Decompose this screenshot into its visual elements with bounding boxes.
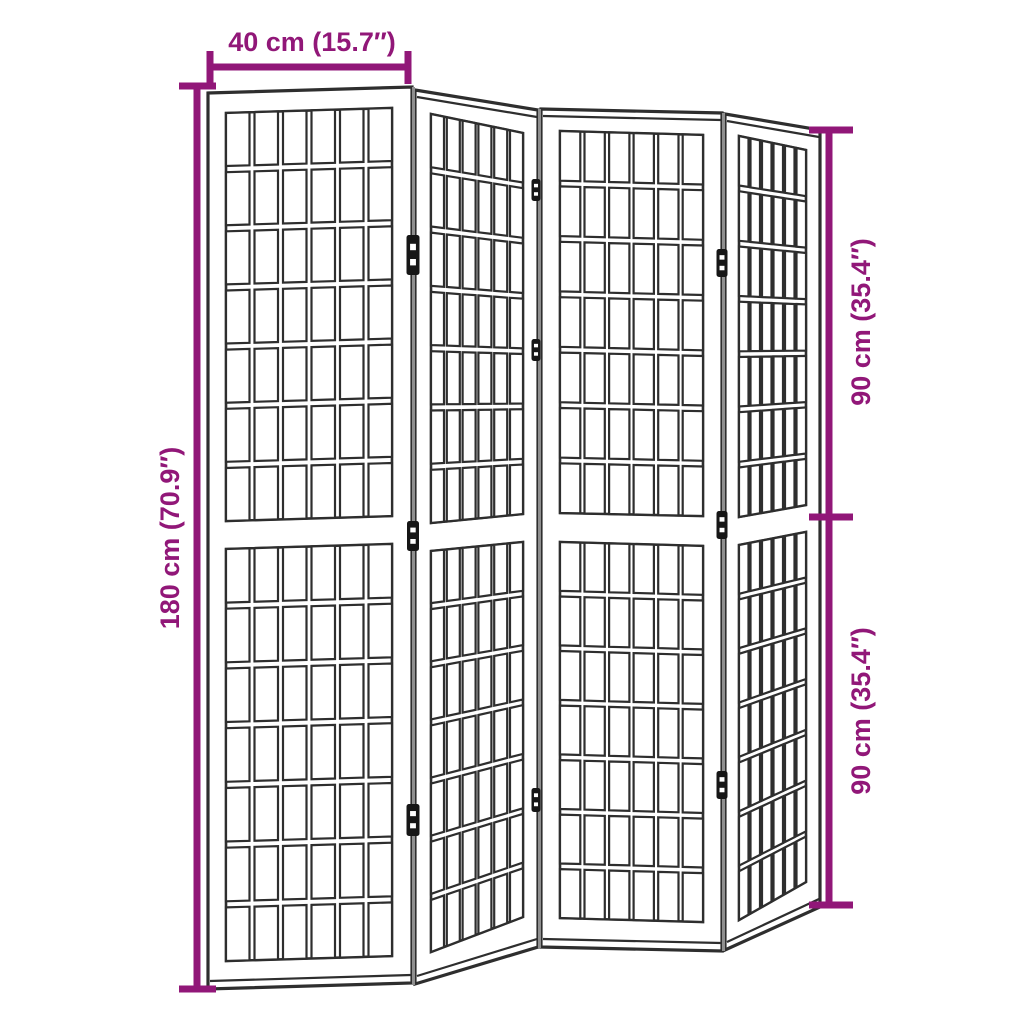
lattice-cell — [463, 547, 476, 599]
lattice-cell — [431, 780, 444, 836]
lattice-cell — [658, 708, 678, 758]
lattice-cell — [463, 352, 476, 404]
lattice-cell — [494, 184, 507, 236]
hinge-hole — [410, 539, 415, 544]
lattice-cell — [797, 148, 807, 196]
lattice-cell — [463, 772, 476, 826]
lattice-cell — [312, 228, 336, 282]
lattice-cell — [762, 303, 772, 351]
lattice-cell — [312, 904, 336, 958]
lattice-cell — [340, 605, 364, 659]
lattice-cell — [255, 846, 279, 900]
hinge-body — [532, 339, 541, 361]
lattice-cell — [226, 847, 250, 901]
lattice-cell — [510, 542, 523, 593]
lattice-cell — [774, 692, 784, 743]
lattice-cell — [585, 761, 605, 810]
lattice-cell — [312, 785, 336, 839]
lattice-cell — [683, 709, 703, 758]
screen-panels — [208, 87, 820, 989]
panel-2 — [415, 90, 538, 984]
lattice-cell — [283, 111, 307, 165]
lattice-cell — [739, 813, 749, 866]
lattice-cell — [463, 410, 476, 462]
lattice-cell — [312, 844, 336, 898]
lattice-cell — [739, 597, 749, 648]
lattice-cell — [226, 907, 250, 961]
lattice-cell — [774, 250, 784, 298]
lattice-cell — [658, 545, 678, 595]
lattice-cell — [226, 787, 250, 841]
lattice-cell — [510, 186, 523, 238]
lattice-cell — [447, 719, 460, 773]
lattice-cell — [431, 173, 444, 228]
lattice-cell — [478, 410, 491, 462]
lattice-cell — [255, 171, 279, 225]
lattice-cell — [658, 654, 678, 703]
lattice-cell — [634, 410, 654, 460]
lattice-cell — [510, 651, 523, 703]
lattice-cell — [762, 195, 772, 244]
lattice-cell — [510, 465, 523, 516]
lattice-cell — [510, 814, 523, 867]
lattice-cell — [340, 664, 364, 718]
lattice-cell — [785, 356, 795, 403]
lattice-cell — [785, 198, 795, 246]
panel-3 — [541, 109, 722, 951]
lattice-cell — [255, 407, 279, 461]
lattice-cell — [283, 905, 307, 959]
lattice-cell — [658, 599, 678, 648]
panel-4 — [725, 114, 820, 950]
lattice-cell — [369, 404, 393, 458]
lattice-cell — [369, 463, 393, 517]
lattice-cell — [283, 666, 307, 720]
hinge-body — [407, 235, 420, 275]
lattice-cell — [283, 229, 307, 283]
dimension-left-label: 180 cm (70.9″) — [155, 447, 185, 630]
lattice-cell — [634, 244, 654, 294]
lattice-cell — [774, 796, 784, 848]
lattice-cell — [560, 706, 580, 755]
lattice-cell — [340, 346, 364, 400]
lattice-cell — [369, 226, 393, 280]
lattice-cell — [312, 406, 336, 460]
lattice-cell — [447, 605, 460, 658]
dimension-top-label: 40 cm (15.7″) — [228, 27, 396, 57]
lattice-cell — [369, 783, 393, 837]
lattice-cell — [785, 688, 795, 738]
lattice-cell — [312, 606, 336, 660]
lattice-cell — [283, 547, 307, 601]
hinge-hole — [410, 259, 416, 265]
lattice-cell — [797, 735, 807, 785]
lattice-cell — [340, 109, 364, 163]
lattice-cell — [585, 298, 605, 348]
lattice-cell — [255, 547, 279, 601]
lattice-cell — [751, 357, 761, 406]
lattice-cell — [494, 409, 507, 460]
lattice-cell — [797, 252, 807, 299]
lattice-cell — [751, 860, 761, 913]
lattice-cell — [762, 357, 772, 406]
lattice-cell — [609, 409, 629, 459]
lattice-cell — [431, 607, 444, 661]
lattice-cell — [560, 408, 580, 458]
lattice-cell — [340, 227, 364, 281]
lattice-cell — [447, 548, 460, 601]
lattice-cell — [369, 345, 393, 399]
lattice-cell — [797, 583, 807, 631]
lattice-cell — [683, 245, 703, 295]
lattice-cell — [739, 136, 749, 187]
lattice-cell — [447, 890, 460, 946]
lattice-cell — [683, 764, 703, 814]
lattice-cell — [797, 200, 807, 248]
lattice-cell — [683, 655, 703, 704]
lattice-cell — [447, 410, 460, 463]
lattice-cell — [609, 243, 629, 293]
lattice-cell — [762, 539, 772, 589]
lattice-cell — [494, 127, 507, 180]
lattice-cell — [369, 843, 393, 897]
lattice-cell — [785, 460, 795, 509]
lattice-cell — [226, 608, 250, 662]
hinge-icon — [532, 339, 541, 361]
hinge-hole — [720, 517, 725, 521]
lattice-cell — [255, 607, 279, 661]
lattice-cell — [431, 410, 444, 463]
lattice-cell — [226, 408, 250, 462]
lattice-cell — [762, 141, 772, 191]
lattice-cell — [797, 532, 807, 580]
lattice-cell — [463, 236, 476, 289]
lattice-cell — [340, 784, 364, 838]
lattice-cell — [255, 230, 279, 284]
lattice-cell — [478, 545, 491, 597]
lattice-cell — [510, 130, 523, 182]
lattice-cell — [478, 181, 491, 234]
lattice-cell — [560, 869, 580, 919]
lattice-cell — [255, 667, 279, 721]
lattice-cell — [634, 354, 654, 404]
lattice-cell — [463, 828, 476, 883]
lattice-cell — [762, 854, 772, 907]
lattice-cell — [510, 705, 523, 757]
lattice-cell — [683, 411, 703, 461]
lattice-cell — [683, 818, 703, 868]
hinge-hole — [534, 192, 538, 196]
lattice-cell — [312, 110, 336, 164]
panel-1 — [208, 87, 412, 989]
lattice-cell — [255, 348, 279, 402]
lattice-cell — [658, 872, 678, 921]
lattice-cell — [774, 641, 784, 691]
lattice-cell — [739, 247, 749, 297]
lattice-cell — [478, 601, 491, 653]
lattice-cell — [751, 248, 761, 297]
lattice-cell — [447, 235, 460, 289]
diagram-canvas: 40 cm (15.7″) 180 cm (70.9″) 90 cm (35.4… — [0, 0, 1024, 1024]
lattice-cell — [797, 837, 807, 888]
lattice-cell — [494, 709, 507, 762]
hinge-hole — [410, 811, 416, 816]
lattice-cell — [340, 724, 364, 778]
hinge-body — [532, 788, 541, 812]
lattice-cell — [762, 697, 772, 748]
lattice-cell — [739, 705, 749, 757]
lattice-cell — [255, 289, 279, 343]
lattice-cell — [785, 637, 795, 686]
hinge-body — [532, 179, 541, 201]
hinge-icon — [717, 249, 728, 277]
lattice-cell — [774, 356, 784, 404]
lattice-cell — [463, 294, 476, 346]
lattice-cell — [431, 665, 444, 720]
lattice-cell — [226, 548, 250, 602]
lattice-cell — [609, 598, 629, 647]
lattice-cell — [785, 740, 795, 790]
lattice-cell — [478, 466, 491, 518]
lattice-cell — [739, 302, 749, 352]
lattice-cell — [739, 357, 749, 407]
hinge-hole — [410, 528, 415, 533]
lattice-cell — [478, 823, 491, 877]
lattice-cell — [609, 816, 629, 865]
lattice-cell — [283, 726, 307, 780]
lattice-cell — [447, 662, 460, 716]
lattice-cell — [762, 410, 772, 459]
lattice-cell — [634, 817, 654, 866]
hinge-body — [407, 521, 419, 551]
lattice-cell — [255, 786, 279, 840]
lattice-cell — [683, 466, 703, 516]
lattice-cell — [797, 304, 807, 351]
lattice-cell — [478, 295, 491, 347]
lattice-cell — [739, 651, 749, 703]
lattice-cell — [785, 408, 795, 456]
lattice-cell — [478, 712, 491, 765]
hinge-icon — [717, 511, 728, 539]
lattice-cell — [634, 465, 654, 515]
lattice-cell — [431, 469, 444, 523]
lattice-cell — [585, 464, 605, 514]
lattice-cell — [785, 843, 795, 894]
lattice-cell — [683, 545, 703, 595]
lattice-cell — [658, 355, 678, 405]
lattice-cell — [510, 242, 523, 293]
lattice-cell — [369, 723, 393, 777]
lattice-cell — [510, 298, 523, 349]
lattice-cell — [510, 760, 523, 813]
lattice-cell — [683, 873, 703, 922]
lattice-cell — [447, 468, 460, 521]
lattice-cell — [560, 186, 580, 236]
lattice-cell — [312, 725, 336, 779]
lattice-cell — [226, 112, 250, 166]
lattice-cell — [312, 287, 336, 341]
lattice-cell — [585, 870, 605, 920]
lattice-cell — [774, 848, 784, 900]
lattice-cell — [785, 304, 795, 351]
lattice-cell — [797, 356, 807, 403]
lattice-cell — [478, 353, 491, 404]
lattice-cell — [658, 189, 678, 239]
lattice-cell — [494, 240, 507, 292]
lattice-cell — [683, 356, 703, 406]
hinge-icon — [532, 179, 541, 201]
lattice-cell — [634, 188, 654, 238]
lattice-cell — [609, 464, 629, 514]
lattice-cell — [447, 352, 460, 405]
hinge-hole — [534, 344, 538, 348]
lattice-cell — [683, 190, 703, 240]
lattice-cell — [494, 465, 507, 516]
lattice-cell — [751, 138, 761, 189]
lattice-cell — [609, 871, 629, 920]
lattice-cell — [312, 665, 336, 719]
lattice-cell — [774, 462, 784, 511]
hinge-hole — [534, 802, 538, 806]
lattice-cell — [634, 871, 654, 920]
lattice-cell — [447, 176, 460, 230]
lattice-cell — [369, 167, 393, 221]
lattice-cell — [774, 303, 784, 351]
lattice-cell — [494, 599, 507, 651]
lattice-cell — [585, 597, 605, 647]
hinge-icon — [407, 235, 420, 275]
lattice-cell — [283, 606, 307, 660]
lattice-cell — [478, 124, 491, 178]
lattice-cell — [431, 351, 444, 404]
lattice-cell — [585, 815, 605, 864]
lattice-cell — [369, 286, 393, 340]
lattice-cell — [585, 543, 605, 592]
lattice-cell — [658, 763, 678, 813]
lattice-cell — [431, 550, 444, 603]
lattice-cell — [585, 353, 605, 403]
lattice-cell — [560, 760, 580, 809]
lattice-cell — [634, 133, 654, 183]
lattice-cell — [226, 349, 250, 403]
dimension-right-lower-label: 90 cm (35.4″) — [846, 627, 876, 795]
lattice-cell — [585, 187, 605, 237]
hinge-body — [717, 771, 728, 799]
hinge-hole — [720, 266, 725, 270]
lattice-cell — [494, 654, 507, 706]
lattice-cell — [751, 807, 761, 860]
hinge-hole — [410, 823, 416, 828]
lattice-cell — [340, 405, 364, 459]
lattice-cell — [658, 134, 678, 184]
lattice-cell — [494, 764, 507, 817]
lattice-cell — [751, 193, 761, 243]
lattice-cell — [494, 544, 507, 595]
hinge-hole — [720, 528, 725, 532]
lattice-cell — [658, 466, 678, 516]
hinge-hole — [720, 777, 725, 781]
lattice-cell — [739, 759, 749, 812]
lattice-cell — [739, 191, 749, 242]
lattice-cell — [340, 545, 364, 599]
lattice-cell — [762, 249, 772, 298]
lattice-cell — [447, 776, 460, 831]
lattice-cell — [340, 903, 364, 957]
lattice-cell — [751, 594, 761, 645]
dimension-top: 40 cm (15.7″) — [210, 27, 408, 84]
lattice-cell — [797, 684, 807, 733]
lattice-cell — [463, 603, 476, 656]
lattice-cell — [560, 815, 580, 864]
lattice-cell — [478, 768, 491, 822]
lattice-cell — [560, 353, 580, 403]
lattice-cell — [609, 354, 629, 404]
lattice-cell — [478, 238, 491, 290]
lattice-cell — [340, 464, 364, 518]
lattice-cell — [431, 233, 444, 287]
hinge-hole — [410, 244, 416, 250]
lattice-cell — [340, 168, 364, 222]
lattice-cell — [340, 844, 364, 898]
lattice-cell — [774, 143, 784, 192]
lattice-cell — [658, 410, 678, 460]
lattice-cell — [797, 459, 807, 507]
lattice-cell — [283, 406, 307, 460]
lattice-cell — [560, 542, 580, 591]
lattice-cell — [609, 762, 629, 811]
lattice-cell — [585, 132, 605, 182]
lattice-cell — [255, 727, 279, 781]
lattice-cell — [751, 754, 761, 806]
hinge-body — [717, 249, 728, 277]
lattice-cell — [369, 108, 393, 162]
lattice-cell — [683, 600, 703, 649]
lattice-cell — [560, 242, 580, 292]
lattice-cell — [510, 596, 523, 647]
lattice-cell — [463, 659, 476, 712]
lattice-cell — [634, 653, 654, 702]
lattice-cell — [609, 543, 629, 592]
lattice-cell — [447, 117, 460, 172]
lattice-cell — [785, 251, 795, 299]
lattice-cell — [560, 131, 580, 181]
lattice-cell — [785, 586, 795, 635]
lattice-cell — [478, 879, 491, 934]
lattice-cell — [369, 664, 393, 718]
dimension-right-upper-label: 90 cm (35.4″) — [846, 238, 876, 406]
lattice-cell — [797, 407, 807, 454]
lattice-cell — [431, 292, 444, 346]
lattice-cell — [634, 544, 654, 593]
lattice-cell — [785, 791, 795, 842]
lattice-cell — [494, 874, 507, 928]
hinge-body — [717, 511, 728, 539]
hinge-icon — [407, 521, 419, 551]
lattice-cell — [312, 346, 336, 400]
lattice-cell — [463, 467, 476, 520]
lattice-cell — [609, 132, 629, 182]
lattice-cell — [463, 121, 476, 175]
lattice-cell — [683, 134, 703, 184]
lattice-cell — [283, 288, 307, 342]
lattice-cell — [560, 651, 580, 701]
lattice-cell — [634, 708, 654, 758]
lattice-cell — [797, 786, 807, 836]
lattice-cell — [463, 885, 476, 941]
lattice-cell — [658, 300, 678, 350]
lattice-cell — [463, 716, 476, 770]
lattice-cell — [774, 409, 784, 458]
